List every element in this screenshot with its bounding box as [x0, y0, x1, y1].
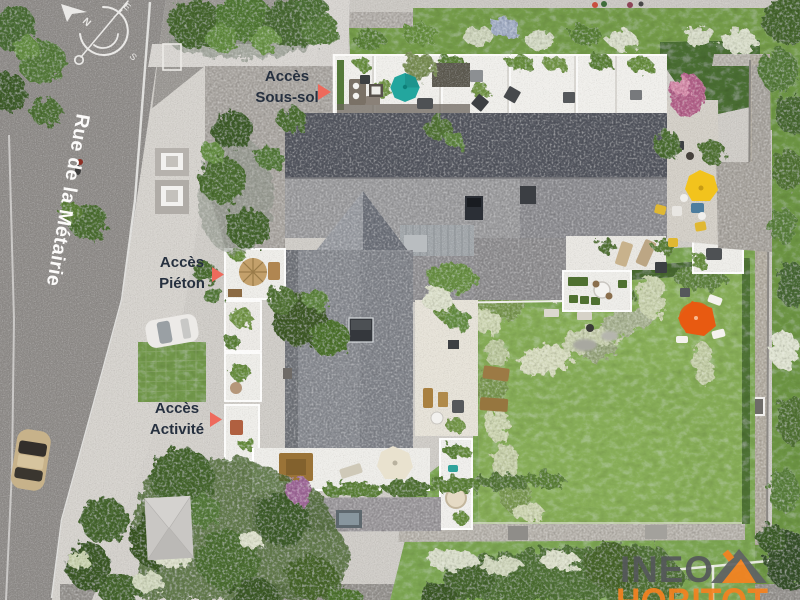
svg-text:Piéton: Piéton [159, 275, 205, 292]
svg-text:Sous-sol: Sous-sol [255, 89, 318, 106]
svg-text:HOBITOT: HOBITOT [616, 581, 768, 600]
svg-text:Accès: Accès [160, 254, 204, 271]
svg-text:Activité: Activité [150, 421, 204, 438]
svg-text:Accès: Accès [265, 68, 309, 85]
svg-text:Accès: Accès [155, 400, 199, 417]
